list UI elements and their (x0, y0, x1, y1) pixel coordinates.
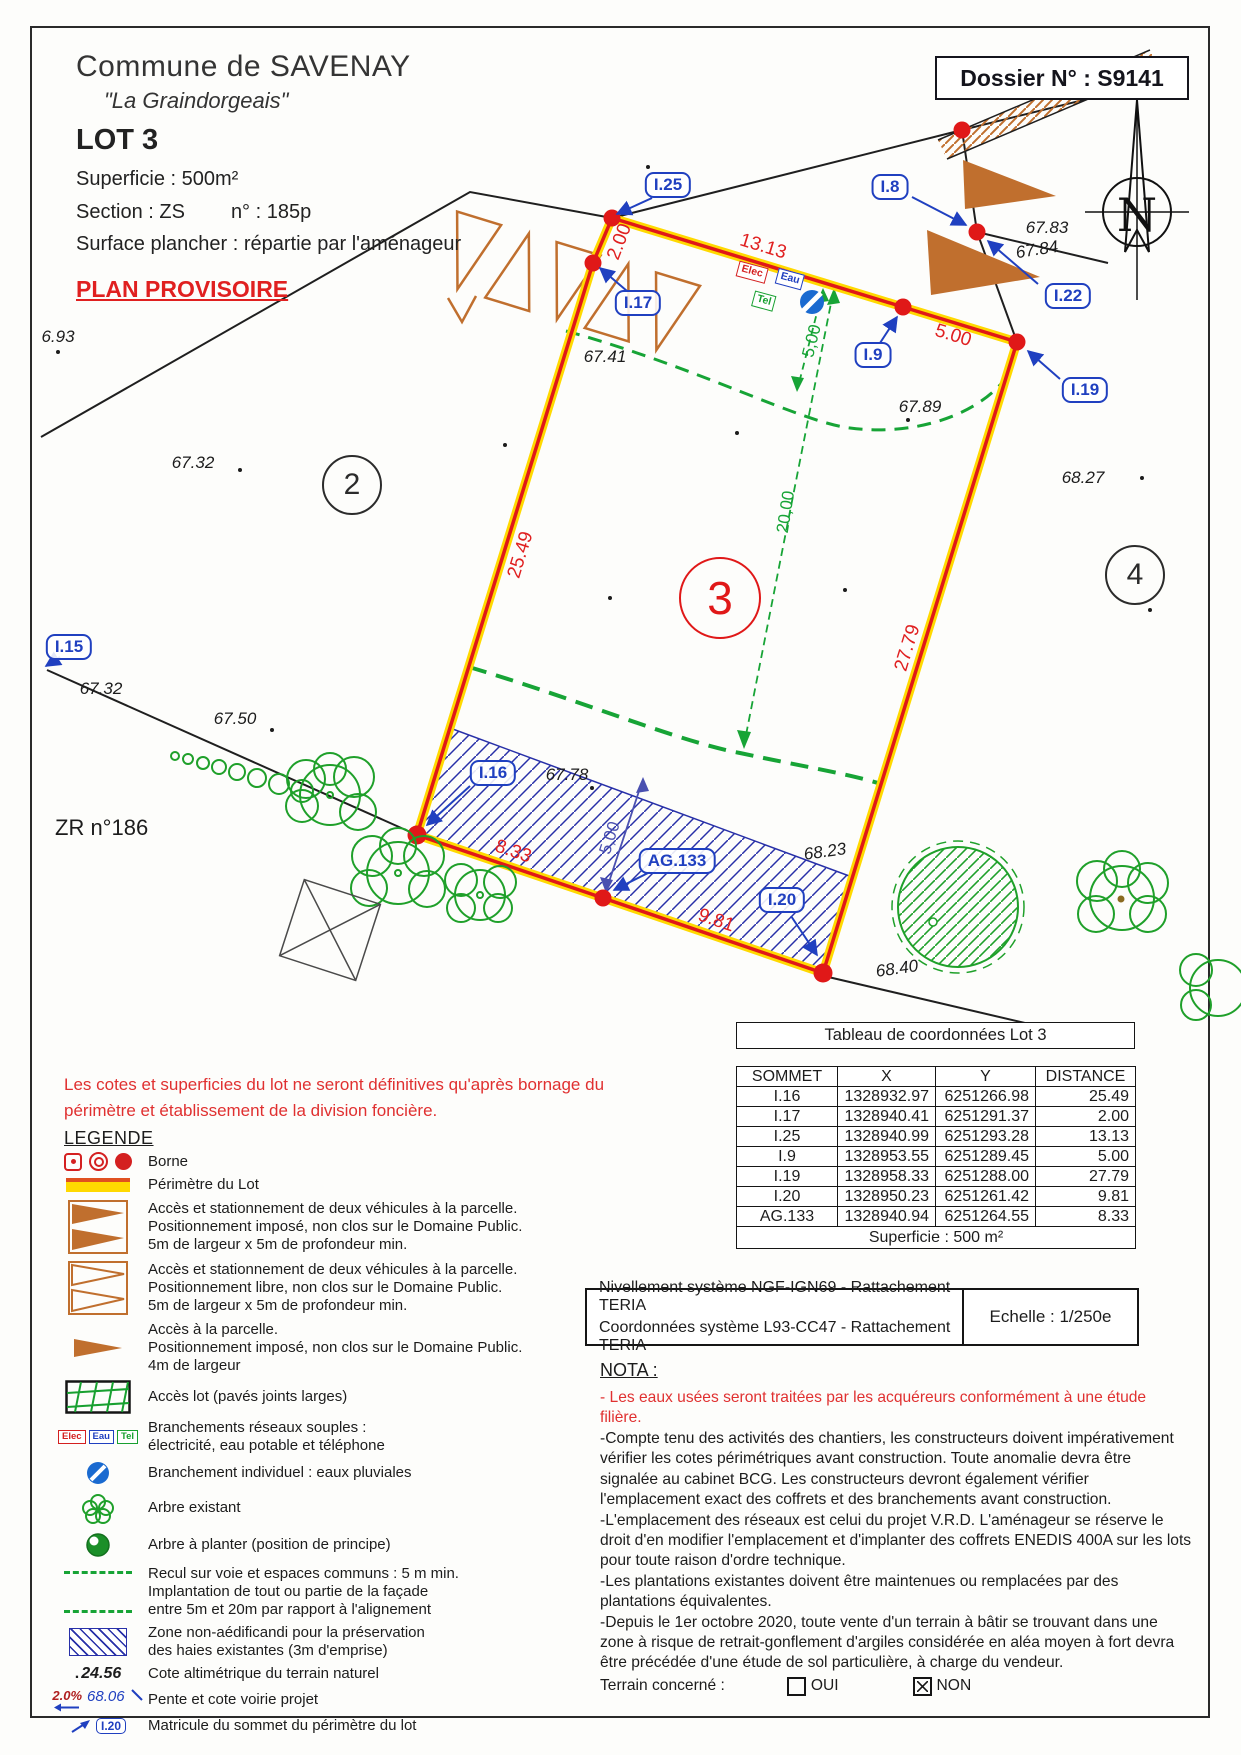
legend-label: Branchements réseaux souples : (148, 1419, 385, 1437)
warning-text: Les cotes et superficies du lot ne seron… (64, 1072, 644, 1123)
slope-sample-icon: 2.0% 68.06 (48, 1688, 148, 1712)
legend-list: Borne Périmètre du Lot Accès et stationn… (48, 1152, 568, 1740)
utility-boxes-icon: Elec Eau Tel (48, 1430, 148, 1444)
legend-item-zone: Zone non-aédificandi pour la préservatio… (48, 1624, 568, 1660)
vertex-label-i15: I.15 (46, 634, 92, 660)
elevation-67-32-b: 67.32 (80, 679, 123, 699)
cell: I.9 (737, 1147, 838, 1167)
legend-label: Cote altimétrique du terrain naturel (148, 1665, 379, 1683)
legend-label-block: Accès à la parcelle. Positionnement impo… (148, 1321, 522, 1375)
col-x: X (838, 1067, 936, 1087)
cell: 5.00 (1036, 1147, 1136, 1167)
vertex-label-i8: I.8 (872, 174, 909, 200)
table-row: I.91328953.556251289.455.00 (737, 1147, 1136, 1167)
north-letter: N (1117, 188, 1157, 242)
vertex-label-i16: I.16 (470, 760, 516, 786)
vertex-label-i9: I.9 (855, 342, 892, 368)
cell: 6251289.45 (936, 1147, 1036, 1167)
nota-item: -Les plantations existantes doivent être… (600, 1572, 1192, 1613)
terrain-concerne-row: Terrain concerné : OUI NON (600, 1677, 1192, 1696)
section-line: Section : ZS n° : 185p (76, 201, 311, 224)
table-row: AG.1331328940.946251264.558.33 (737, 1207, 1136, 1227)
legend-item-matricule: I.20 Matricule du sommet du périmètre du… (48, 1717, 568, 1735)
legend-label-block: Zone non-aédificandi pour la préservatio… (148, 1624, 425, 1660)
legend-label: Pente et cote voirie projet (148, 1691, 318, 1709)
cell: 6251291.37 (936, 1107, 1036, 1127)
cell: I.17 (737, 1107, 838, 1127)
nota-block: NOTA : - Les eaux usées seront traitées … (600, 1360, 1192, 1696)
cell: 1328940.94 (838, 1207, 936, 1227)
zr-parcel-label: ZR n°186 (55, 815, 148, 841)
legend-label: électricité, eau potable et téléphone (148, 1437, 385, 1455)
legend-label: 5m de largeur x 5m de profondeur min. (148, 1297, 517, 1315)
legend-label: Accès lot (pavés joints larges) (148, 1388, 347, 1406)
elevation-67-41: 67.41 (584, 347, 627, 367)
setback-dash-icon (48, 1565, 148, 1619)
legend-label: Zone non-aédificandi pour la préservatio… (148, 1624, 425, 1642)
survey-reference-box: Nivellement système NGF-IGN69 - Rattache… (585, 1288, 1139, 1346)
legend-label: Matricule du sommet du périmètre du lot (148, 1717, 416, 1735)
checkbox-non-checked-icon (913, 1677, 932, 1696)
cell: 27.79 (1036, 1167, 1136, 1187)
lot-number-3: 3 (679, 557, 761, 639)
elevation-67-32-a: 67.32 (172, 453, 215, 473)
legend-item-acces-impose-2v: Accès et stationnement de deux véhicules… (48, 1199, 568, 1255)
terrain-label: Terrain concerné : (600, 1677, 725, 1695)
cell: 1328958.33 (838, 1167, 936, 1187)
superficie-footer: Superficie : 500 m² (737, 1227, 1136, 1249)
legend-label-block: Accès et stationnement de deux véhicules… (148, 1261, 517, 1315)
access-parcel-icon (48, 1335, 148, 1361)
tel-legend-box: Tel (117, 1430, 138, 1444)
col-distance: DISTANCE (1036, 1067, 1136, 1087)
nota-item: -Depuis le 1er octobre 2020, toute vente… (600, 1613, 1192, 1674)
legend-item-cote: .24.56 Cote altimétrique du terrain natu… (48, 1665, 568, 1683)
cell: I.25 (737, 1127, 838, 1147)
elevation-sample-icon: .24.56 (48, 1665, 148, 1683)
vertex-label-i25: I.25 (645, 172, 691, 198)
cell: 1328950.23 (838, 1187, 936, 1207)
cell: 6251264.55 (936, 1207, 1036, 1227)
table-footer-row: Superficie : 500 m² (737, 1227, 1136, 1249)
lot-number-title: LOT 3 (76, 124, 158, 157)
legend-item-arbre-existant: Arbre existant (48, 1491, 568, 1525)
nota-title: NOTA : (600, 1360, 1192, 1381)
vertex-label-ag133: AG.133 (639, 848, 716, 874)
legend-label: Implantation de tout ou partie de la faç… (148, 1583, 459, 1601)
survey-systems: Nivellement système NGF-IGN69 - Rattache… (587, 1290, 964, 1344)
legend-label: des haies existantes (3m d'emprise) (148, 1642, 425, 1660)
cell: 6251288.00 (936, 1167, 1036, 1187)
tick-icon (130, 1688, 144, 1702)
eau-legend-box: Eau (89, 1430, 114, 1444)
legend-item-branchements: Elec Eau Tel Branchements réseaux souple… (48, 1419, 568, 1455)
legend-label: Périmètre du Lot (148, 1176, 259, 1194)
legend-item-acces-parcelle: Accès à la parcelle. Positionnement impo… (48, 1321, 568, 1375)
plan-provisoire-stamp: PLAN PROVISOIRE (76, 276, 288, 303)
vertex-label-i19: I.19 (1062, 377, 1108, 403)
borne-icon (48, 1152, 148, 1171)
cell: 1328953.55 (838, 1147, 936, 1167)
vertex-label-i22: I.22 (1045, 283, 1091, 309)
parcel-number-4: 4 (1105, 545, 1165, 605)
table-row: I.171328940.416251291.372.00 (737, 1107, 1136, 1127)
legend-title: LEGENDE (64, 1128, 154, 1149)
cell: 6251293.28 (936, 1127, 1036, 1147)
elevation-67-83: 67.83 (1026, 218, 1069, 238)
coordonnees-line: Coordonnées système L93-CC47 - Rattachem… (599, 1319, 962, 1355)
legend-label: Accès et stationnement de deux véhicules… (148, 1261, 517, 1279)
tree-to-plant-icon (48, 1530, 148, 1560)
scale-label: Echelle : 1/250e (964, 1290, 1137, 1344)
nota-red-item: - Les eaux usées seront traitées par les… (600, 1388, 1192, 1429)
legend-label: Borne (148, 1153, 188, 1171)
table-row: I.191328958.336251288.0027.79 (737, 1167, 1136, 1187)
coordinate-table-title: Tableau de coordonnées Lot 3 (736, 1022, 1135, 1049)
legend-item-eaux-pluviales: Branchement individuel : eaux pluviales (48, 1460, 568, 1486)
cell: 1328932.97 (838, 1087, 936, 1107)
legend-label: Recul sur voie et espaces communs : 5 m … (148, 1565, 459, 1583)
table-row: I.161328932.976251266.9825.49 (737, 1087, 1136, 1107)
nota-item: -Compte tenu des activités des chantiers… (600, 1429, 1192, 1511)
paved-access-icon (48, 1380, 148, 1414)
cell: 8.33 (1036, 1207, 1136, 1227)
dossier-number-box: Dossier N° : S9141 (935, 56, 1189, 100)
legend-label: Positionnement libre, non clos sur le Do… (148, 1279, 517, 1297)
legend-label: Arbre à planter (position de principe) (148, 1536, 391, 1554)
legend-item-arbre-planter: Arbre à planter (position de principe) (48, 1530, 568, 1560)
elevation-67-89: 67.89 (899, 397, 942, 417)
col-y: Y (936, 1067, 1036, 1087)
legend-item-recul: Recul sur voie et espaces communs : 5 m … (48, 1565, 568, 1619)
elevation-67-78: 67.78 (546, 765, 589, 785)
cell: 25.49 (1036, 1087, 1136, 1107)
legend-label-block: Branchements réseaux souples : électrici… (148, 1419, 385, 1455)
cell: I.16 (737, 1087, 838, 1107)
legend-label-block: Accès et stationnement de deux véhicules… (148, 1200, 522, 1254)
legend-label: Positionnement imposé, non clos sur le D… (148, 1218, 522, 1236)
legend-item-perimetre: Périmètre du Lot (48, 1176, 568, 1194)
legend-label: Positionnement imposé, non clos sur le D… (148, 1339, 522, 1357)
stormwater-icon (48, 1460, 148, 1486)
parcel-number-2: 2 (322, 455, 382, 515)
cell: 6251266.98 (936, 1087, 1036, 1107)
non-label: NON (937, 1677, 972, 1695)
elevation-67-50: 67.50 (214, 709, 257, 729)
cell: 1328940.99 (838, 1127, 936, 1147)
cell: 2.00 (1036, 1107, 1136, 1127)
table-header-row: SOMMET X Y DISTANCE (737, 1067, 1136, 1087)
elevation-sample-value: 24.56 (81, 1665, 121, 1683)
cell: 9.81 (1036, 1187, 1136, 1207)
cell: I.20 (737, 1187, 838, 1207)
vertex-label-i17: I.17 (615, 290, 661, 316)
vertex-label-i20: I.20 (759, 887, 805, 913)
surface-plancher-line: Surface plancher : répartie par l'aménag… (76, 233, 461, 256)
table-row: I.251328940.996251293.2813.13 (737, 1127, 1136, 1147)
matricule-sample-icon: I.20 (48, 1718, 148, 1734)
access-imposed-icon (48, 1199, 148, 1255)
superficie-line: Superficie : 500m² (76, 168, 238, 191)
legend-item-acces-lot: Accès lot (pavés joints larges) (48, 1380, 568, 1414)
numero-label: n° : 185p (231, 201, 311, 224)
legend-label: Branchement individuel : eaux pluviales (148, 1464, 412, 1482)
legend-label: Arbre existant (148, 1499, 241, 1517)
elevation-68-27: 68.27 (1062, 468, 1105, 488)
lieu-dit: "La Graindorgeais" (104, 88, 288, 114)
coordinate-table: SOMMET X Y DISTANCE I.161328932.97625126… (736, 1066, 1136, 1249)
legend-label: Accès à la parcelle. (148, 1321, 522, 1339)
cell: 1328940.41 (838, 1107, 936, 1127)
nivellement-line: Nivellement système NGF-IGN69 - Rattache… (599, 1279, 962, 1315)
cell: I.19 (737, 1167, 838, 1187)
road-elevation-value: 68.06 (87, 1688, 125, 1705)
legend-item-pente: 2.0% 68.06 Pente et cote voirie projet (48, 1688, 568, 1712)
legend-item-borne: Borne (48, 1152, 568, 1171)
table-row: I.201328950.236251261.429.81 (737, 1187, 1136, 1207)
existing-tree-icon (48, 1491, 148, 1525)
legend-label: Accès et stationnement de deux véhicules… (148, 1200, 522, 1218)
legend-label-block: Recul sur voie et espaces communs : 5 m … (148, 1565, 459, 1619)
nota-item: -L'emplacement des réseaux est celui du … (600, 1511, 1192, 1572)
legend-item-acces-libre-2v: Accès et stationnement de deux véhicules… (48, 1260, 568, 1316)
perimeter-swatch-icon (48, 1178, 148, 1192)
cell: 13.13 (1036, 1127, 1136, 1147)
legend-label: entre 5m et 20m par rapport à l'aligneme… (148, 1601, 459, 1619)
oui-label: OUI (811, 1677, 839, 1695)
legend-label: 4m de largeur (148, 1357, 522, 1375)
access-free-icon (48, 1260, 148, 1316)
cell: AG.133 (737, 1207, 838, 1227)
slope-arrow-icon (54, 1703, 80, 1712)
elevation-6-93: 6.93 (41, 327, 74, 347)
matricule-sample-value: I.20 (96, 1718, 126, 1734)
commune-title: Commune de SAVENAY (76, 50, 411, 84)
scanned-plan-page: Commune de SAVENAY "La Graindorgeais" LO… (0, 0, 1241, 1755)
elec-legend-box: Elec (58, 1430, 86, 1444)
leader-arrow-icon (70, 1718, 92, 1734)
checkbox-oui-icon (787, 1677, 806, 1696)
coordinate-table-block: Tableau de coordonnées Lot 3 SOMMET X Y … (736, 1022, 1135, 1249)
slope-percent-value: 2.0% (52, 1688, 82, 1703)
zone-hatch-icon (48, 1628, 148, 1656)
cell: 6251261.42 (936, 1187, 1036, 1207)
section-label: Section : ZS (76, 201, 185, 224)
legend-label: 5m de largeur x 5m de profondeur min. (148, 1236, 522, 1254)
col-sommet: SOMMET (737, 1067, 838, 1087)
